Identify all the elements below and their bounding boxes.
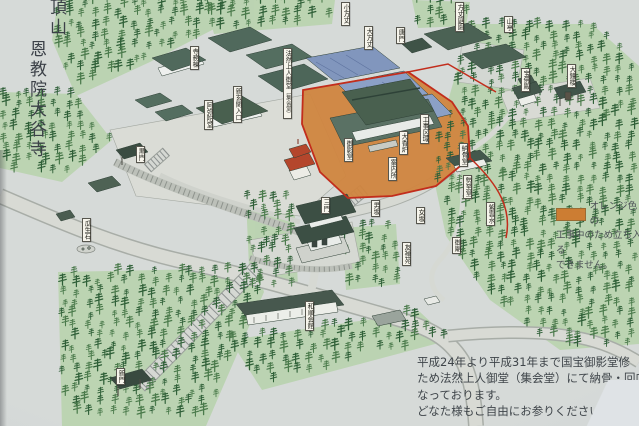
legend-line-1: オレンジ色の xyxy=(590,200,639,229)
honen-hall-label: 法然上人御堂（集会堂） xyxy=(283,48,292,119)
sanmon-label: 三門 xyxy=(321,197,330,214)
temple-title-column-1: 頂山 xyxy=(44,0,69,38)
temple-map-sign-photo: 頂山 恩教院大谷寺 寺務棟阿弥陀堂新玄関入口法然上人御堂（集会堂）小方丈大方丈唐… xyxy=(0,0,639,426)
karamon-label: 唐門 xyxy=(396,27,405,44)
information-label: 案内所 xyxy=(388,157,397,181)
hojo-garden-label: 方丈庭園 xyxy=(455,2,464,32)
legend-line-2: 工事中のため立ち入る xyxy=(556,229,639,258)
incense-burner-label: 大香炉 xyxy=(399,131,408,155)
mausoleum-label: 御廟 xyxy=(452,237,461,254)
nokotsudo-label: 納骨堂 xyxy=(459,143,468,167)
orange-legend-swatch xyxy=(556,208,586,221)
wajun-hall-label: 和順会館 xyxy=(305,301,314,331)
photo-edge-shadow xyxy=(0,150,7,426)
temple-title-column-2: 恩教院大谷寺 xyxy=(24,40,49,160)
construction-zone-label: 工事区域 xyxy=(420,114,429,144)
new-entrance-label: 新玄関入口 xyxy=(233,86,242,123)
seishido-label: 勢至堂 xyxy=(463,175,472,199)
temple-office-label: 寺務棟 xyxy=(190,46,199,70)
amidado-label: 阿弥陀堂 xyxy=(204,100,213,130)
shiunsui-label: 紫雲水 xyxy=(486,202,495,226)
hobutsuden-label: 宝佛殿 xyxy=(521,68,530,92)
great-bell-label: 大鐘楼 xyxy=(567,64,576,88)
uryuseki-label: 瓜生石 xyxy=(82,218,91,242)
kuromon-label: 黒門 xyxy=(136,146,145,163)
sign-frame-corner xyxy=(559,380,639,426)
santei-label: 山亭 xyxy=(504,16,513,33)
ohojo-label: 大方丈 xyxy=(364,26,373,50)
onnazaka-label: 女坂 xyxy=(416,207,425,224)
kohojo-label: 小方丈 xyxy=(341,2,350,26)
yuzen-garden-label: 友禅苑 xyxy=(402,242,411,266)
uryuseki-stone xyxy=(77,245,95,253)
miedo-label: 御影堂 xyxy=(344,138,353,162)
shinmon-label: 新門 xyxy=(116,368,125,385)
construction-legend: オレンジ色の 工事中のため立ち入る できません。 xyxy=(556,200,639,274)
honen-hall-sublabel: （集会堂） xyxy=(285,89,291,117)
otokozaka-label: 男坂 xyxy=(371,200,380,217)
legend-line-3: できません。 xyxy=(556,259,639,274)
notice-line-1: 平成24年より平成31年まで国宝御影堂修 xyxy=(417,354,639,370)
